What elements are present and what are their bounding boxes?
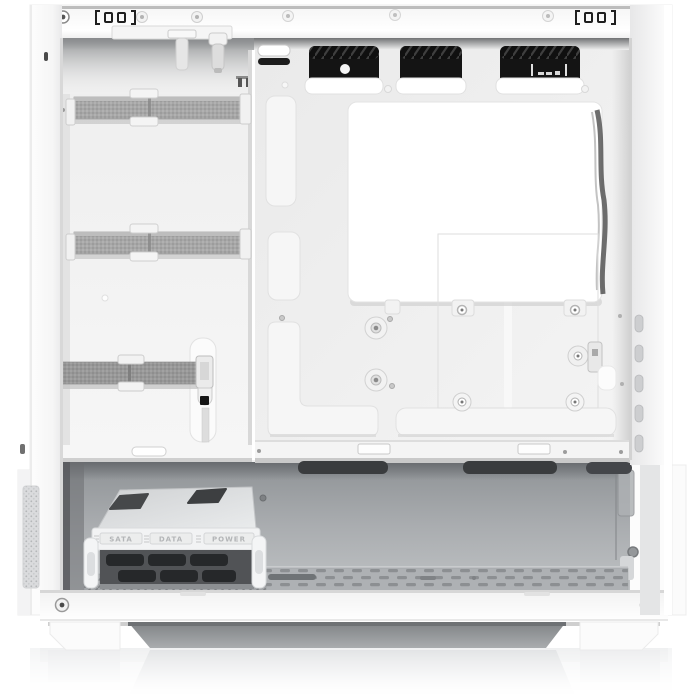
cpu-cutout-plate	[348, 102, 605, 316]
floor-slot	[420, 576, 436, 580]
tray-bottom-rail	[255, 440, 630, 463]
tab-grommet	[571, 306, 580, 315]
standoff-screw	[365, 369, 387, 391]
tray-screw	[388, 317, 393, 322]
panel-screw	[390, 10, 401, 21]
bottom-rail	[40, 590, 668, 622]
tray-label-power: POWER	[212, 536, 246, 544]
standoff-screw	[365, 317, 387, 339]
product-photo-scene: SATA DATA POWER	[0, 0, 700, 700]
cable-grommet-3	[496, 46, 584, 94]
panel-screw	[192, 12, 203, 23]
top-panel-seam	[58, 6, 656, 9]
grommet-screw	[566, 393, 584, 411]
floor-reflection	[30, 648, 672, 700]
floor-slot	[268, 574, 316, 580]
mount-peg	[209, 33, 227, 73]
case: SATA DATA POWER	[18, 5, 686, 650]
top-left-shadow-cavity	[62, 38, 254, 96]
channel-tab-slot	[132, 447, 166, 456]
strap-tail	[202, 408, 209, 442]
left-vent-mesh	[23, 486, 39, 588]
tray-label-sata: SATA	[109, 536, 133, 544]
tray-screw	[390, 384, 395, 389]
frame-slit	[20, 444, 25, 454]
rail-vent	[524, 592, 550, 596]
panel-screw	[543, 11, 554, 22]
frame-slit	[44, 52, 48, 61]
rail-tab	[358, 444, 390, 454]
floor-hole	[472, 576, 476, 580]
caddy-opening	[100, 550, 254, 589]
tray-notch	[598, 366, 616, 390]
rib-vertical-upper	[266, 96, 296, 206]
rail-screw	[257, 449, 261, 453]
grommet-screw	[453, 393, 471, 411]
rail-tab	[518, 444, 550, 454]
case-foot-right	[580, 622, 658, 650]
panel-screw	[137, 12, 148, 23]
rivet-screw	[56, 599, 69, 612]
rib-horizontal	[396, 408, 616, 436]
basement-hole	[260, 495, 266, 501]
basement-hole	[628, 547, 638, 557]
rib-faint	[504, 298, 512, 410]
tray-screw	[280, 316, 285, 321]
panel-screw	[283, 11, 294, 22]
rail-screw	[563, 450, 567, 454]
tray-screw	[618, 314, 622, 318]
tray-hole	[282, 82, 288, 88]
motherboard-tray	[255, 45, 630, 458]
plate-tab	[385, 300, 400, 314]
cable-grommet-1	[305, 46, 383, 94]
top-slot-cutout	[258, 45, 290, 56]
cable-grommet-2	[396, 46, 466, 94]
tab-grommet	[458, 306, 467, 315]
rear-bracket	[618, 470, 634, 516]
channel-hole	[102, 295, 108, 301]
pc-case-photo: SATA DATA POWER	[0, 0, 700, 700]
top-slot-cutout-dark	[258, 58, 290, 65]
tray-label-data: DATA	[159, 536, 183, 544]
rail-screw	[619, 450, 623, 454]
grommet-hole-dot	[340, 64, 350, 74]
tray-hole	[385, 86, 392, 93]
rib-vertical-mid	[268, 232, 300, 300]
tray-hole	[582, 86, 589, 93]
rail-vent	[180, 592, 206, 596]
tray-screw	[620, 382, 624, 386]
